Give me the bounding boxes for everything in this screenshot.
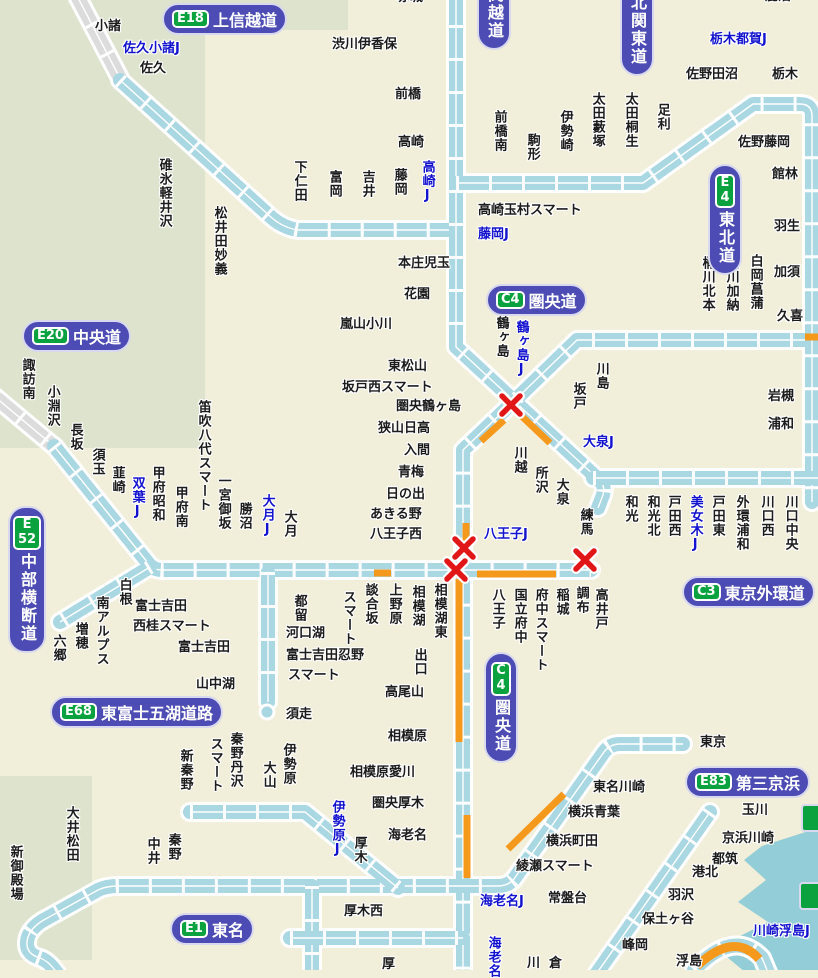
interchange-label: 伊勢原 — [281, 743, 295, 785]
interchange-label: 峰岡 — [622, 939, 648, 953]
interchange-label: 常盤台 — [548, 892, 587, 906]
interchange-label: 中井 — [145, 837, 159, 865]
badge-e68-fujigoko: E68東富士五湖道路 — [50, 696, 223, 728]
interchange-label: 鶴ヶ島 — [494, 316, 508, 358]
interchange-label: 倉 — [549, 957, 562, 971]
interchange-label: 川 — [527, 957, 540, 971]
badge-e52-chubu-route-name: 中部横断道 — [15, 553, 39, 643]
interchange-label: 白岡菖蒲 — [748, 254, 762, 310]
interchange-label: 圏央厚木 — [372, 797, 424, 811]
badge-c4-kenou-north: C4圏央道 — [486, 284, 587, 316]
interchange-label: 松井田妙義 — [212, 206, 226, 276]
interchange-label: 相模湖 — [410, 585, 424, 627]
route-code-digits: 4 — [720, 191, 729, 206]
interchange-label: 横浜青葉 — [568, 806, 620, 820]
interchange-label: 国立府中 — [512, 588, 526, 644]
expressway-traffic-map: 赤城小諸佐久小諸J佐久渋川伊香保前橋高崎高崎J碓氷軽井沢松井田妙義下仁田富岡吉井… — [0, 0, 818, 970]
badge-e68-fujigoko-route-number: E68 — [60, 703, 97, 722]
interchange-label: 富岡 — [327, 170, 341, 198]
interchange-label: 川島 — [594, 362, 608, 390]
interchange-label: 富士吉田忍野 — [286, 649, 364, 663]
route-code-letter: E — [18, 518, 36, 533]
interchange-label: 新秦野 — [178, 749, 192, 791]
badge-e52-chubu: E52中部横断道 — [8, 506, 46, 653]
junction-label: 海老名 — [486, 936, 500, 978]
badge-kitakanto: 北関東道 — [620, 0, 654, 76]
badge-c3-gaikan-route-name: 東京外環道 — [725, 580, 805, 604]
interchange-label: 西桂スマート — [133, 620, 211, 634]
interchange-label: 高崎 — [398, 136, 424, 150]
interchange-label: 入間 — [404, 444, 430, 458]
badge-e83-daisan: E83第三京浜 — [685, 766, 810, 798]
interchange-label: 須玉 — [90, 448, 104, 476]
interchange-label: 大泉 — [554, 478, 568, 506]
interchange-label: 久喜 — [777, 310, 803, 324]
interchange-label: 保土ヶ谷 — [642, 913, 694, 927]
interchange-label: 秦野 — [166, 833, 180, 861]
interchange-label: 京浜川崎 — [722, 832, 774, 846]
interchange-label: 所沢 — [533, 466, 547, 494]
interchange-label: 戸田西 — [666, 495, 680, 537]
badge-c4-kenou-south-route-number: C4 — [491, 662, 511, 696]
junction-label: 佐久小諸J — [123, 42, 180, 56]
interchange-label: 談合坂 — [363, 583, 377, 625]
route-code-letter: C — [496, 664, 506, 679]
interchange-label: 佐久 — [140, 62, 166, 76]
interchange-label: 相模原 — [388, 730, 427, 744]
interchange-label: 富士吉田 — [178, 641, 230, 655]
interchange-label: 下仁田 — [292, 160, 306, 202]
interchange-label: 前橋南 — [492, 110, 506, 152]
interchange-label: 八王子西 — [370, 528, 422, 542]
interchange-label: 前橋 — [395, 88, 421, 102]
interchange-label: 和光北 — [645, 495, 659, 537]
interchange-label: 大井松田 — [64, 806, 78, 862]
interchange-label: 調布 — [574, 586, 588, 614]
badge-c4-kenou-north-route-number: C4 — [496, 291, 525, 310]
junction-label: 八王子J — [484, 528, 528, 542]
badge-kanetsu-route-name: 関越道 — [482, 0, 506, 40]
junction-label: 双葉J — [130, 476, 144, 520]
interchange-label: 佐野藤岡 — [738, 136, 790, 150]
interchange-label: 小淵沢 — [45, 385, 59, 427]
interchange-label: 川口西 — [759, 495, 773, 537]
badge-e1-tomei-route-number: E1 — [180, 920, 208, 939]
interchange-label: 高尾山 — [385, 686, 424, 700]
interchange-label: 長坂 — [68, 423, 82, 451]
interchange-label: 坂戸西スマート — [342, 381, 433, 395]
badge-stub-2 — [799, 882, 818, 910]
badge-e1-tomei-route-name: 東名 — [212, 917, 244, 941]
interchange-label: 佐野田沼 — [686, 68, 738, 82]
interchange-label: 白根 — [117, 578, 131, 606]
interchange-label: 山中湖 — [196, 678, 235, 692]
interchange-label: 足利 — [655, 103, 669, 131]
interchange-label: 駒形 — [525, 133, 539, 161]
interchange-label: 浮島 — [676, 955, 702, 969]
interchange-label: 相模湖東 — [432, 583, 446, 639]
badge-e52-chubu-route-number: E52 — [13, 516, 41, 550]
interchange-label: 八王子 — [490, 588, 504, 630]
junction-label: 高崎J — [420, 160, 434, 204]
interchange-label: 厚木西 — [344, 905, 383, 919]
interchange-label: 外環浦和 — [734, 495, 748, 551]
interchange-label: 狭山日高 — [378, 422, 430, 436]
badge-kanetsu: 関越道 — [477, 0, 511, 50]
junction-label: 大泉J — [583, 436, 614, 450]
interchange-label: 岩槻 — [768, 390, 794, 404]
interchange-label: 六郷 — [51, 634, 65, 662]
interchange-label: 太田桐生 — [623, 92, 637, 148]
interchange-label: 秦野丹沢 — [228, 732, 242, 788]
interchange-label: 浦和 — [768, 418, 794, 432]
interchange-label: 勝沼 — [237, 502, 251, 530]
interchange-label: 新御殿場 — [8, 845, 22, 901]
traffic-map-page: { "map": { "colors": { "background": "#f… — [0, 0, 818, 970]
interchange-label: 碓氷軽井沢 — [157, 158, 171, 228]
interchange-label: 伊勢崎 — [558, 110, 572, 152]
interchange-label: 吉井 — [360, 170, 374, 198]
interchange-label: スマート — [208, 737, 222, 793]
interchange-label: 甲府昭和 — [150, 466, 164, 522]
badge-kitakanto-route-name: 北関東道 — [625, 0, 649, 66]
junction-label: 伊勢原J — [330, 800, 344, 858]
interchange-label: 増穂 — [73, 622, 87, 650]
badge-e1-tomei: E1東名 — [170, 913, 254, 945]
interchange-label: 須走 — [286, 708, 312, 722]
interchange-label: 太田藪塚 — [590, 92, 604, 148]
junction-label: 藤岡J — [478, 228, 509, 242]
badge-e18-joshinetsu-route-number: E18 — [172, 10, 209, 29]
interchange-label: 上野原 — [387, 583, 401, 625]
badge-c4-kenou-north-route-name: 圏央道 — [529, 288, 577, 312]
junction-label: 大月J — [260, 494, 274, 538]
interchange-label: 綾瀬スマート — [516, 860, 594, 874]
interchange-label: 加須 — [774, 266, 800, 280]
badge-e68-fujigoko-route-name: 東富士五湖道路 — [101, 700, 213, 724]
interchange-label: 本庄児玉 — [398, 257, 450, 271]
interchange-label: 厚木 — [352, 836, 366, 864]
junction-label: 栃木都賀J — [710, 33, 767, 47]
interchange-label: 稲城 — [554, 588, 568, 616]
route-code-letter: E — [720, 176, 729, 191]
interchange-label: 戸田東 — [710, 495, 724, 537]
badge-c3-gaikan: C3東京外環道 — [682, 576, 815, 608]
interchange-label: 海老名 — [388, 829, 427, 843]
interchange-label: 河口湖 — [286, 627, 325, 641]
badge-e4-tohoku: E4東北道 — [708, 164, 742, 275]
badge-e83-daisan-route-number: E83 — [695, 773, 732, 792]
interchange-label: 大月 — [282, 510, 296, 538]
interchange-label: 圏央鶴ヶ島 — [396, 400, 461, 414]
interchange-label: 相模原愛川 — [350, 766, 415, 780]
interchange-label: 鹿沼 — [765, 0, 791, 4]
interchange-label: 韮崎 — [110, 466, 124, 494]
interchange-label: 館林 — [772, 168, 798, 182]
badge-e20-chuo-route-name: 中央道 — [73, 324, 121, 348]
interchange-label: スマート — [288, 669, 340, 683]
interchange-label: 出口 — [412, 648, 426, 676]
interchange-label: 川越 — [512, 446, 526, 474]
junction-label: 海老名J — [480, 895, 524, 909]
interchange-label: 高井戸 — [593, 588, 607, 630]
interchange-label: 羽沢 — [668, 889, 694, 903]
interchange-label: 府中スマート — [533, 588, 547, 672]
interchange-label: 渋川伊香保 — [332, 38, 397, 52]
interchange-label: あきる野 — [370, 508, 422, 522]
junction-label: 川崎浮島J — [753, 925, 810, 939]
interchange-label: 横浜町田 — [546, 835, 598, 849]
interchange-label: 東松山 — [388, 360, 427, 374]
interchange-label: 甲府南 — [173, 486, 187, 528]
interchange-label: 東京 — [700, 736, 726, 750]
badge-stub-1 — [801, 804, 818, 832]
badge-e18-joshinetsu-route-name: 上信越道 — [213, 7, 277, 31]
interchange-label: 花園 — [404, 288, 430, 302]
junction-label: 鶴ヶ島J — [514, 320, 528, 378]
interchange-label: 羽生 — [774, 220, 800, 234]
interchange-label: 笛吹八代スマート — [196, 400, 210, 512]
badge-e18-joshinetsu: E18上信越道 — [162, 3, 287, 35]
route-code-digits: 52 — [18, 533, 36, 548]
interchange-label: 港北 — [692, 866, 718, 880]
interchange-label: 南アルプス — [94, 596, 108, 666]
interchange-label: 一宮御坂 — [216, 474, 230, 530]
interchange-label: 玉川 — [742, 804, 768, 818]
interchange-label: スマート — [341, 590, 355, 646]
interchange-label: 赤城 — [397, 0, 423, 5]
junction-label: 美女木J — [688, 495, 702, 553]
interchange-label: 大山 — [261, 761, 275, 789]
badge-c3-gaikan-route-number: C3 — [692, 583, 721, 602]
route-code-digits: 4 — [496, 679, 506, 694]
interchange-label: 高崎玉村スマート — [478, 204, 582, 218]
badge-e20-chuo: E20中央道 — [22, 320, 131, 352]
badge-e83-daisan-route-name: 第三京浜 — [736, 770, 800, 794]
interchange-label: 日の出 — [386, 488, 425, 502]
interchange-label: 嵐山小川 — [340, 318, 392, 332]
interchange-label: 川口中央 — [783, 495, 797, 551]
badge-e20-chuo-route-number: E20 — [32, 327, 69, 346]
interchange-label: 和光 — [623, 495, 637, 523]
interchange-label: 練馬 — [578, 508, 592, 536]
interchange-label: 青梅 — [398, 466, 424, 480]
road-terminal-circle — [260, 705, 274, 719]
interchange-label: 諏訪南 — [20, 358, 34, 400]
interchange-label: 坂戸 — [571, 382, 585, 410]
badge-c4-kenou-south: C4圏央道 — [484, 652, 518, 763]
badge-c4-kenou-south-route-name: 圏央道 — [489, 699, 513, 753]
interchange-label: 東名川崎 — [593, 781, 645, 795]
interchange-label: 小諸 — [95, 20, 121, 34]
interchange-label: 藤岡 — [392, 168, 406, 196]
interchange-label: 都留 — [292, 594, 306, 622]
interchange-label: 栃木 — [772, 68, 798, 82]
interchange-label: 富士吉田 — [135, 600, 187, 614]
badge-e4-tohoku-route-number: E4 — [715, 174, 734, 208]
badge-e4-tohoku-route-name: 東北道 — [713, 211, 737, 265]
